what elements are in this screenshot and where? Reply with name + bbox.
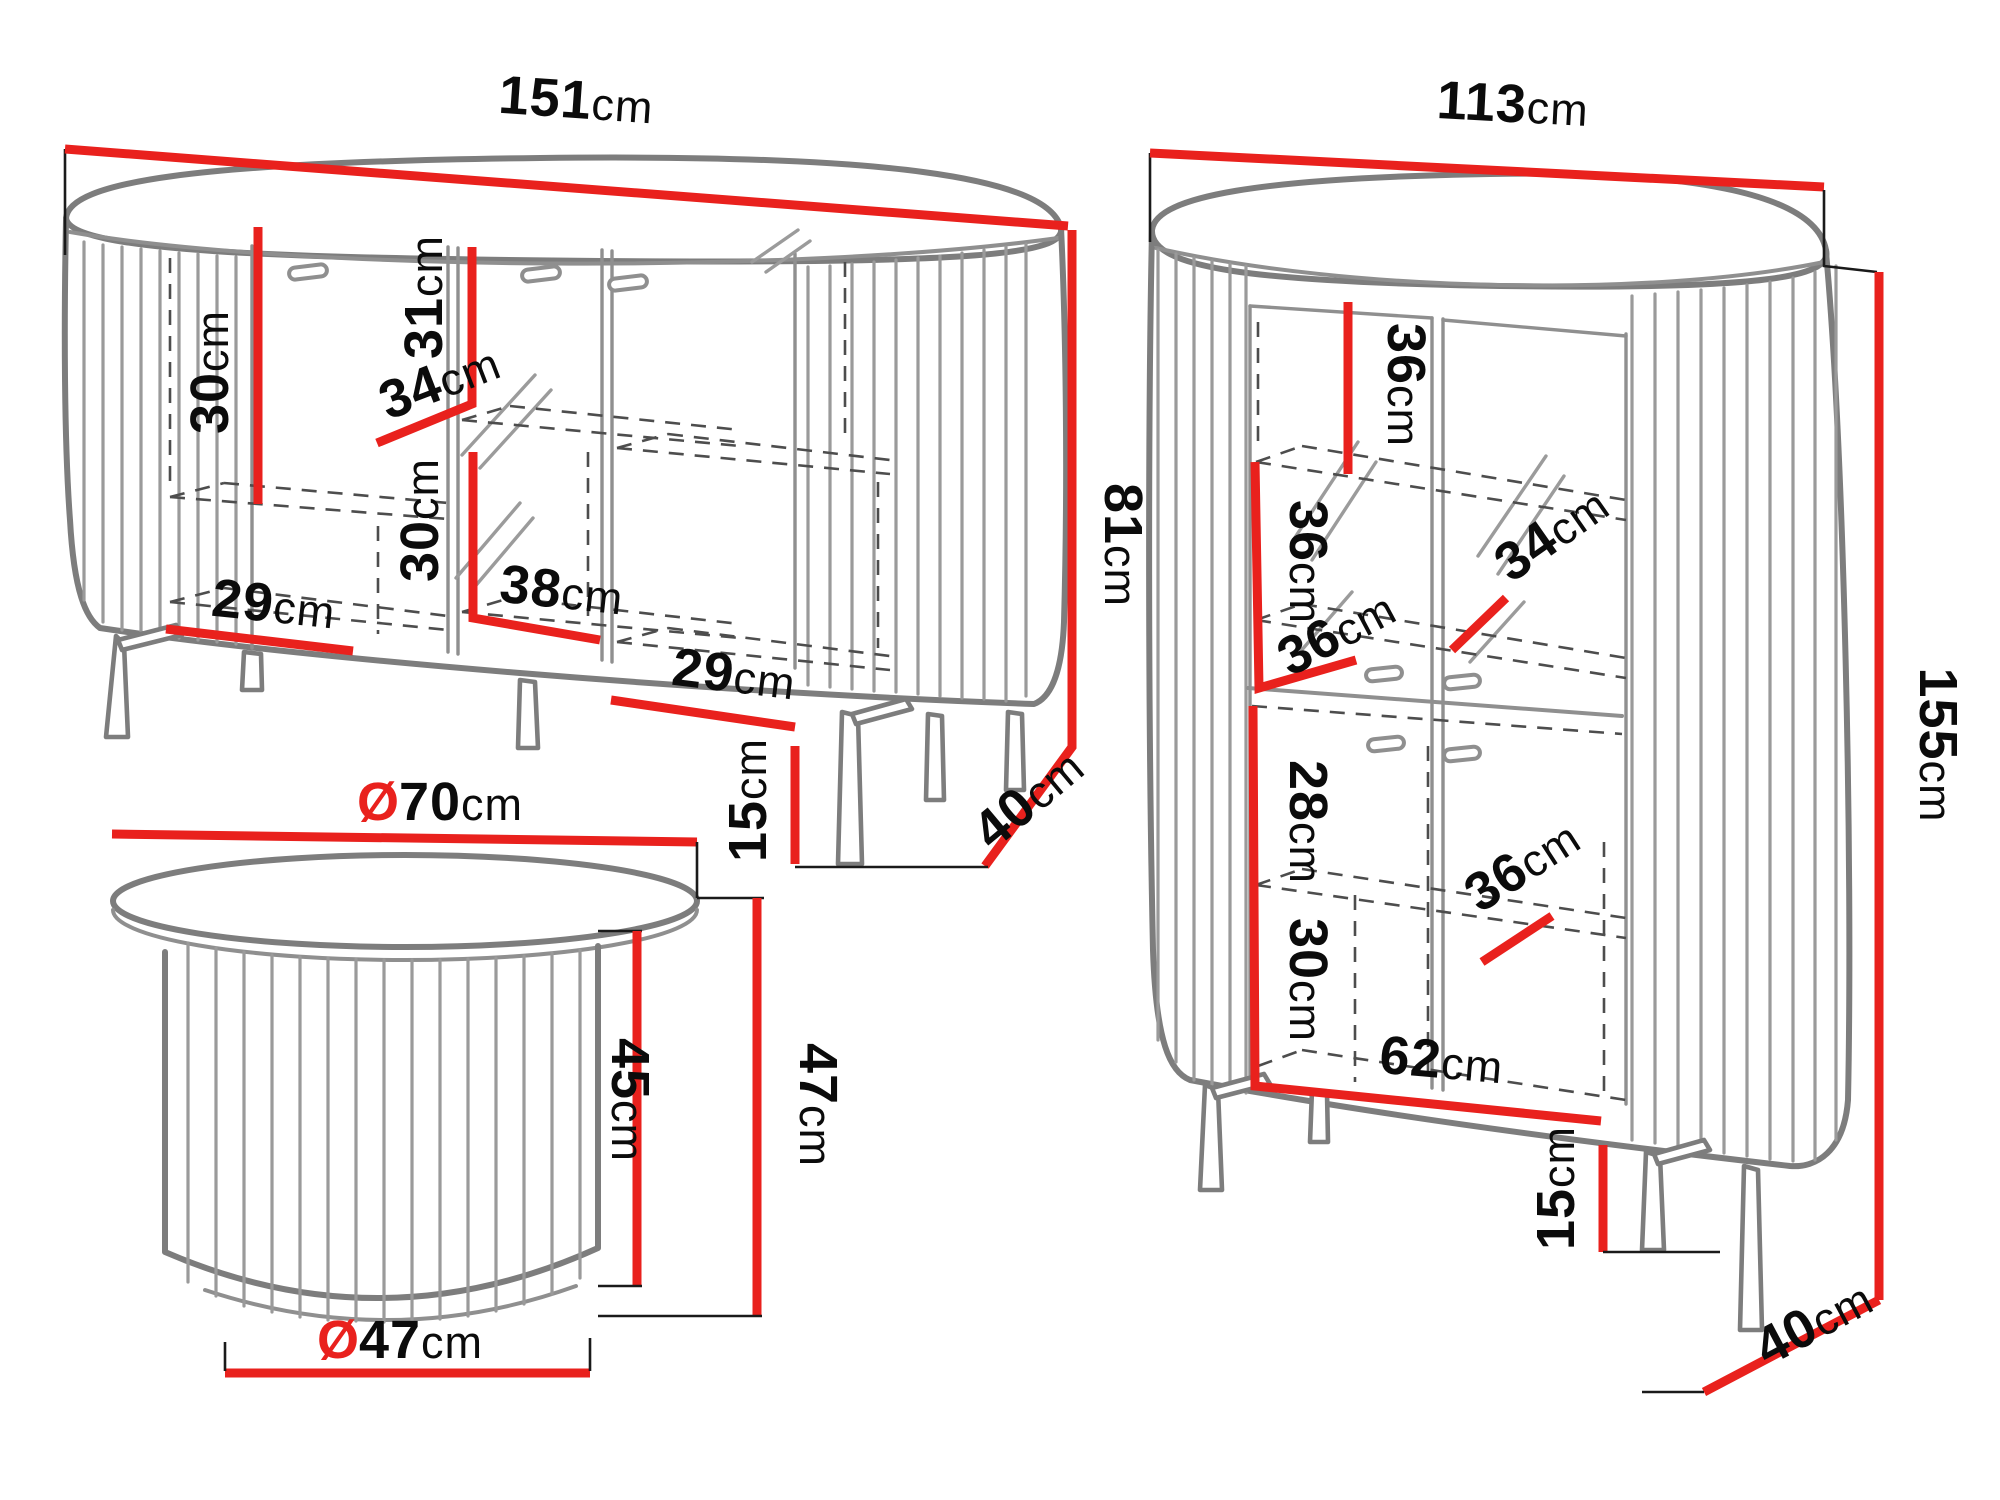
leg <box>242 652 262 690</box>
table-flutes <box>188 943 580 1322</box>
diagram-svg: 151cm 81cm 40cm 30cm 31cm 34cm 30cm 38cm… <box>0 0 2000 1500</box>
dim-label-cabinet-depth: 40cm <box>1745 1266 1883 1377</box>
door-handle-icon <box>1443 674 1480 690</box>
door-handle-icon <box>1367 736 1404 752</box>
dim-label-cabinet-top-shelf: 36cm <box>1376 323 1436 447</box>
dim-label-sideboard-leg: 15cm <box>718 738 778 862</box>
leg <box>1642 1152 1664 1250</box>
leg <box>926 714 944 800</box>
dim-label-cabinet-width: 113cm <box>1435 70 1590 138</box>
dim-label-cabinet-lower-shelf-depth: 36cm <box>1454 806 1591 924</box>
cabinet-top <box>1152 174 1826 287</box>
table-column-outline <box>165 946 598 1298</box>
dim-label-cabinet-height: 155cm <box>1908 667 1968 822</box>
cabinet-flutes-left <box>1158 250 1246 1093</box>
door-handle-icon <box>608 275 647 292</box>
door-handle-icon <box>1443 746 1480 762</box>
dim-label-sideboard-center-width: 38cm <box>497 554 627 627</box>
door-handle-icon <box>288 264 327 281</box>
dim-label-cabinet-top-shelf-depth: 34cm <box>1484 473 1620 593</box>
dim-label-sideboard-door-height: 31cm <box>394 235 454 359</box>
dim-line-top-diameter <box>112 834 697 842</box>
door-handle-icon <box>1365 666 1402 682</box>
dim-label-sideboard-height: 81cm <box>1093 483 1153 607</box>
dim-label-table-column-height: 45cm <box>600 1038 660 1162</box>
dim-label-table-base-diameter: Ø47cm <box>317 1310 483 1370</box>
dim-label-cabinet-middle-shelf: 36cm <box>1278 500 1338 624</box>
leg <box>518 680 538 748</box>
leg <box>838 712 862 864</box>
door-handle-icon <box>521 266 560 283</box>
dim-label-sideboard-depth: 40cm <box>962 735 1096 861</box>
dim-line-top-shelf-depth <box>1452 598 1506 650</box>
dim-label-table-top-diameter: Ø70cm <box>357 772 523 832</box>
dim-label-sideboard-right-width: 29cm <box>669 637 799 712</box>
cabinet-top-rim <box>1156 248 1824 285</box>
dim-label-cabinet-leg: 15cm <box>1526 1126 1586 1250</box>
dim-label-sideboard-left-shelf: 30cm <box>180 310 240 434</box>
dim-label-sideboard-left-width: 29cm <box>209 568 339 641</box>
leg <box>1740 1166 1762 1330</box>
cabinet-drawing: 113cm 155cm 40cm 36cm 34cm 36cm 36cm 28c… <box>1149 70 1968 1392</box>
furniture-dimension-diagram: 151cm 81cm 40cm 30cm 31cm 34cm 30cm 38cm… <box>0 0 2000 1500</box>
dim-line-width <box>1150 153 1824 187</box>
leg <box>1310 1090 1328 1142</box>
sideboard-drawing: 151cm 81cm 40cm 30cm 31cm 34cm 30cm 38cm… <box>65 65 1153 867</box>
leg-brace <box>852 699 912 724</box>
dim-label-cabinet-interior-width: 62cm <box>1377 1025 1506 1096</box>
table-top <box>113 855 697 947</box>
leg <box>1200 1085 1222 1190</box>
dim-label-sideboard-width: 151cm <box>497 65 656 136</box>
leg-brace <box>1654 1140 1710 1164</box>
sideboard-legs <box>106 625 1024 864</box>
dim-label-cabinet-bottom-shelf: 30cm <box>1278 918 1338 1042</box>
dim-label-sideboard-lower-shelf: 30cm <box>390 458 450 582</box>
cabinet-handles <box>1365 666 1480 762</box>
dim-label-table-total-height: 47cm <box>788 1043 848 1167</box>
cabinet-flutes-right <box>1632 266 1836 1161</box>
sideboard-flutes-right <box>808 244 1026 701</box>
dim-label-cabinet-lower-section: 28cm <box>1278 760 1338 884</box>
